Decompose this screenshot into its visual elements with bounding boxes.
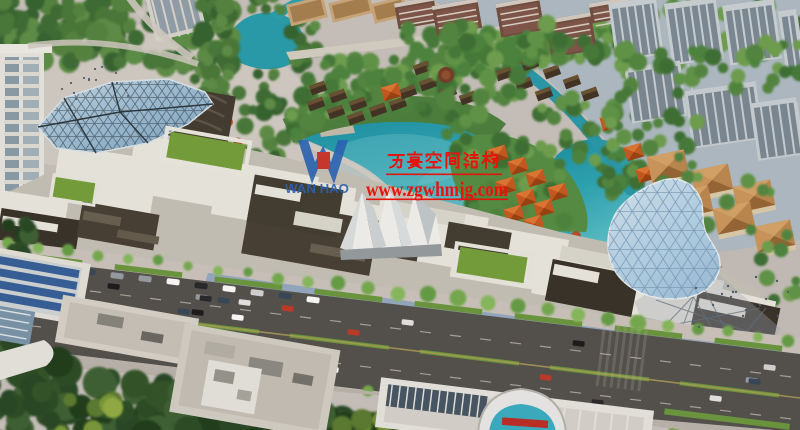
svg-text:www.zgwhmjg.com: www.zgwhmjg.com [366,177,508,201]
svg-text:WAN HAO: WAN HAO [285,181,349,196]
